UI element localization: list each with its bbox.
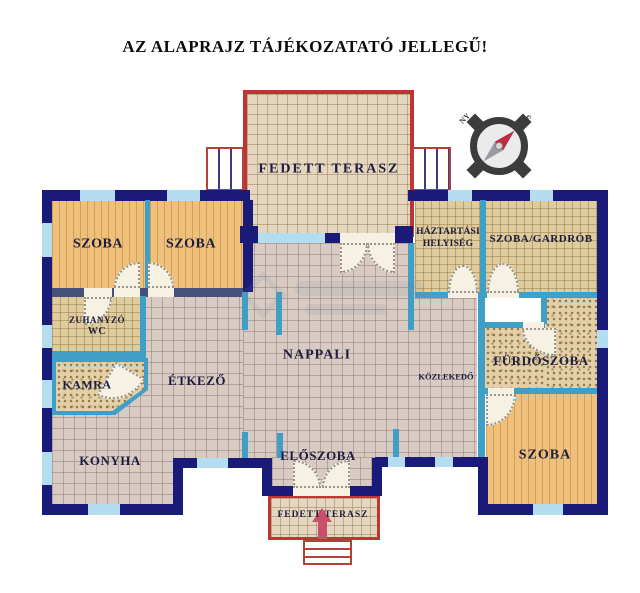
window-left-3	[42, 380, 52, 408]
label-szoba1: SZOBA	[73, 235, 123, 253]
wall-top-right	[408, 190, 608, 201]
door-gap-terrace	[340, 233, 395, 243]
plan-title: AZ ALAPRAJZ TÁJÉKOZATATÓ JELLEGŰ!	[122, 37, 487, 57]
wall-szoba2-nappali	[243, 200, 253, 292]
window-right-1	[597, 330, 608, 348]
watermark-text-bar	[295, 281, 423, 296]
window-hall-2	[435, 457, 453, 467]
label-haztartasi-line1: HÁZTARTÁSI	[416, 227, 480, 239]
label-kamra: KAMRA	[62, 378, 111, 393]
compass: NY É D K	[461, 108, 537, 184]
label-furdoszoba: FÜRDŐSZOBA	[493, 353, 588, 369]
partition-bath-step	[541, 298, 547, 324]
watermark-text-bar	[305, 304, 387, 315]
window-notch	[197, 458, 228, 468]
window-hall-1	[388, 457, 405, 467]
window-top-4	[530, 190, 553, 201]
compass-pivot	[495, 142, 503, 150]
label-nappali: NAPPALI	[283, 346, 351, 364]
label-szoba3: SZOBA	[519, 446, 571, 464]
window-left-4	[42, 452, 52, 485]
partition-zuhanyzo-right	[140, 296, 146, 354]
terrace-top-railing-left	[206, 147, 244, 191]
entrance-steps	[303, 540, 352, 565]
door-gap-szoba2	[148, 288, 174, 297]
label-eloszoba: ELŐSZOBA	[280, 448, 356, 464]
wall-terrace-corner-right	[395, 226, 413, 243]
door-gap-zuhanyzo	[84, 288, 112, 297]
floor-plan: AZ ALAPRAJZ TÁJÉKOZATATÓ JELLEGŰ!	[0, 0, 640, 593]
label-szoba2: SZOBA	[166, 235, 216, 253]
partition-stub-konyha-eloszoba	[242, 432, 248, 458]
label-zuhanyzo: ZUHANYZÓ	[69, 315, 125, 326]
door-gap-szoba1	[114, 288, 140, 297]
entrance-arrow-shaft	[318, 521, 327, 539]
label-haztartasi: HÁZTARTÁSI HELYISÉG	[416, 227, 480, 251]
label-wc: WC	[69, 326, 125, 339]
label-kozlekedo: KÖZLEKEDŐ	[418, 372, 473, 383]
terrace-top-railing-right	[412, 147, 451, 191]
exterior-notch	[183, 468, 272, 518]
wall-entry-bottom-left	[262, 486, 293, 496]
label-konyha: KONYHA	[79, 453, 141, 469]
label-gardrob: SZOBA/GARDRÓB	[489, 233, 592, 247]
window-left-2	[42, 325, 52, 348]
label-terrace-top: FEDETT TERASZ	[258, 160, 399, 178]
window-top-1	[80, 190, 115, 201]
window-terrace-back	[258, 233, 325, 243]
window-top-3	[448, 190, 472, 201]
window-bottom-right	[533, 504, 563, 515]
label-haztartasi-line2: HELYISÉG	[416, 239, 480, 251]
partition-haztartasi-gardrob	[480, 200, 486, 294]
window-top-2	[167, 190, 200, 201]
window-left-1	[42, 223, 52, 257]
label-zuhanyzo-wc: ZUHANYZÓ WC	[69, 315, 125, 339]
partition-stub-eloszoba-right	[393, 429, 399, 458]
label-terrace-bottom: FEDETT TERASZ	[277, 510, 368, 522]
partition-zuhanyzo-kamra	[52, 351, 146, 358]
label-etkezo: ÉTKEZŐ	[168, 373, 226, 389]
window-bottom-left	[88, 504, 120, 515]
wall-right	[597, 190, 608, 515]
